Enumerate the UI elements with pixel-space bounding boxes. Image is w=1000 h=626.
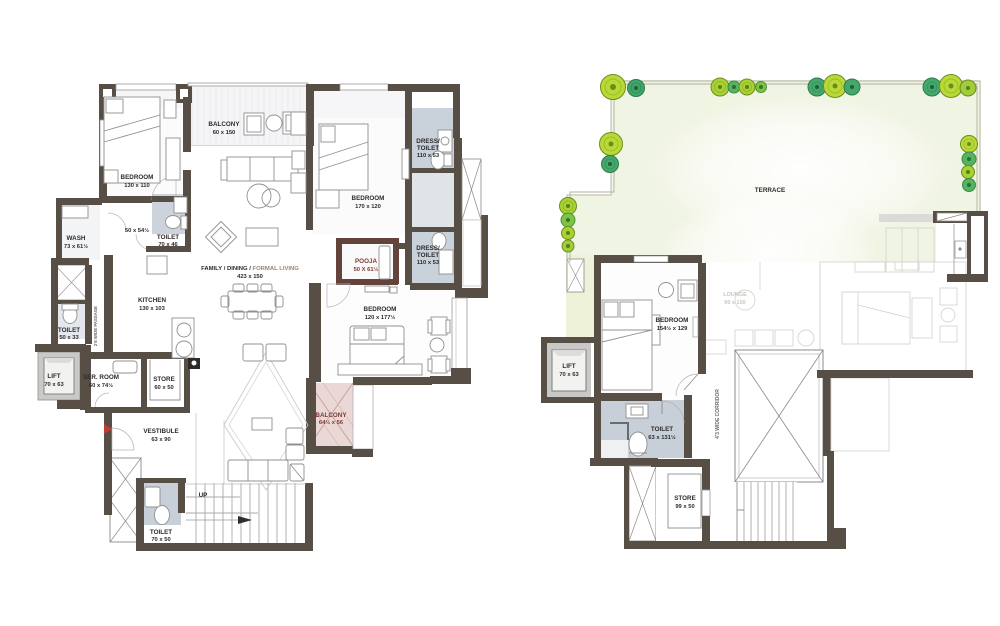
svg-text:120 x 177½: 120 x 177½ bbox=[365, 314, 396, 321]
svg-text:TOILET: TOILET bbox=[150, 529, 172, 536]
svg-text:DRESS/: DRESS/ bbox=[416, 138, 440, 145]
svg-text:BEDROOM: BEDROOM bbox=[364, 306, 397, 313]
svg-text:WASH: WASH bbox=[67, 235, 86, 242]
svg-text:BEDROOM: BEDROOM bbox=[656, 317, 689, 324]
svg-text:73 x 61½: 73 x 61½ bbox=[64, 243, 88, 250]
svg-text:BALCONY: BALCONY bbox=[315, 412, 347, 419]
svg-text:4'3 WIDE CORRIDOR: 4'3 WIDE CORRIDOR bbox=[715, 389, 721, 439]
svg-text:60 x 150: 60 x 150 bbox=[213, 130, 236, 136]
svg-text:50 x 33: 50 x 33 bbox=[59, 335, 79, 341]
svg-text:70 x 46: 70 x 46 bbox=[158, 242, 178, 248]
svg-text:TOILET: TOILET bbox=[417, 145, 439, 152]
svg-text:POOJA: POOJA bbox=[355, 258, 377, 265]
svg-text:63 x 90: 63 x 90 bbox=[151, 437, 170, 443]
svg-text:70 x 63: 70 x 63 bbox=[559, 372, 579, 378]
svg-text:SER. ROOM: SER. ROOM bbox=[83, 374, 119, 381]
svg-text:UP: UP bbox=[199, 492, 208, 499]
svg-text:110 x 53: 110 x 53 bbox=[417, 153, 440, 159]
svg-text:99 x 50: 99 x 50 bbox=[675, 504, 694, 510]
svg-text:154½ x 129: 154½ x 129 bbox=[657, 325, 688, 332]
svg-text:LOUNGE: LOUNGE bbox=[723, 292, 747, 298]
svg-text:50 X 61½: 50 X 61½ bbox=[354, 266, 379, 273]
svg-text:VESTIBULE: VESTIBULE bbox=[143, 428, 178, 435]
svg-text:TOILET: TOILET bbox=[157, 234, 179, 241]
svg-text:STORE: STORE bbox=[674, 495, 696, 502]
svg-text:DRESS/: DRESS/ bbox=[416, 245, 440, 252]
svg-text:423 x 150: 423 x 150 bbox=[237, 274, 263, 280]
svg-text:50 x 54½: 50 x 54½ bbox=[125, 227, 149, 234]
svg-text:64½ x 56: 64½ x 56 bbox=[319, 419, 344, 426]
svg-text:70 x 50: 70 x 50 bbox=[151, 537, 170, 543]
svg-text:110 x 53: 110 x 53 bbox=[417, 260, 440, 266]
svg-text:TOILET: TOILET bbox=[651, 426, 673, 433]
svg-text:BEDROOM: BEDROOM bbox=[121, 174, 154, 181]
svg-text:LIFT: LIFT bbox=[47, 373, 60, 380]
svg-text:FAMILY / DINING / FORMAL LIVIN: FAMILY / DINING / FORMAL LIVING bbox=[201, 266, 299, 272]
svg-text:BALCONY: BALCONY bbox=[208, 121, 240, 128]
svg-text:KITCHEN: KITCHEN bbox=[138, 297, 166, 304]
svg-text:170 x 120: 170 x 120 bbox=[355, 204, 381, 210]
svg-text:60 x 50: 60 x 50 bbox=[154, 385, 173, 391]
svg-text:70 x 63: 70 x 63 bbox=[44, 382, 64, 388]
svg-text:STORE: STORE bbox=[153, 376, 175, 383]
svg-text:LIFT: LIFT bbox=[562, 363, 575, 370]
svg-text:TOILET: TOILET bbox=[417, 252, 439, 259]
svg-text:130 x 103: 130 x 103 bbox=[139, 306, 166, 312]
svg-text:TOILET: TOILET bbox=[58, 327, 80, 334]
svg-text:60 x 74½: 60 x 74½ bbox=[89, 382, 113, 389]
svg-text:63 x 131½: 63 x 131½ bbox=[648, 434, 676, 441]
svg-text:TERRACE: TERRACE bbox=[755, 187, 785, 194]
svg-text:2'6 WIDE PASSAGE: 2'6 WIDE PASSAGE bbox=[93, 306, 98, 346]
svg-text:BEDROOM: BEDROOM bbox=[352, 195, 385, 202]
svg-text:130 x 110: 130 x 110 bbox=[124, 183, 149, 189]
svg-text:90 x 150: 90 x 150 bbox=[724, 300, 745, 306]
